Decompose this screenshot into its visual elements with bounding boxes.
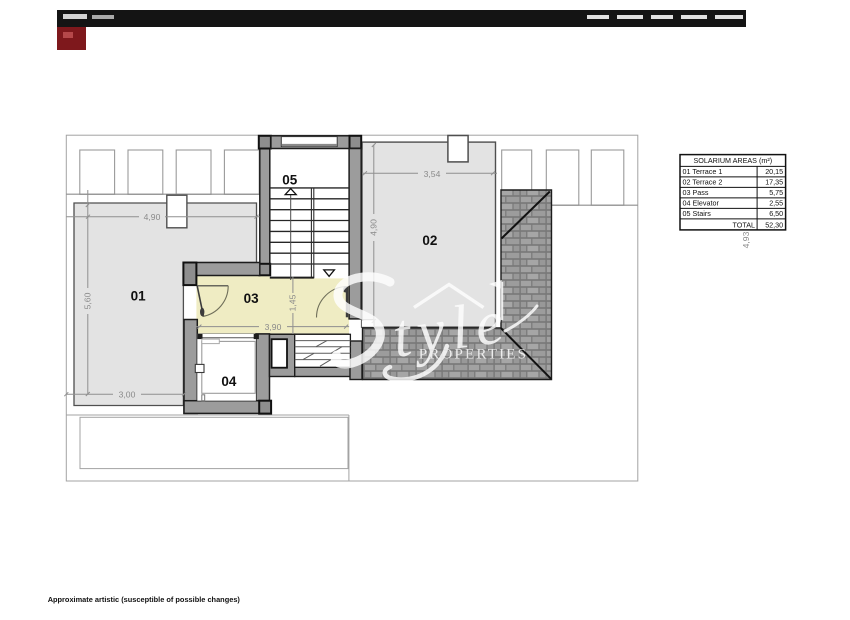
svg-text:03: 03 xyxy=(244,291,260,306)
svg-text:4,93: 4,93 xyxy=(741,231,751,248)
svg-text:52,30: 52,30 xyxy=(765,220,783,229)
svg-text:3,90: 3,90 xyxy=(265,322,282,332)
svg-text:4,90: 4,90 xyxy=(369,219,379,236)
svg-text:5,75: 5,75 xyxy=(769,188,783,197)
svg-text:PROPERTIES: PROPERTIES xyxy=(419,347,528,363)
svg-text:02 Terrace 2: 02 Terrace 2 xyxy=(683,178,723,187)
svg-text:Approximate artistic (suscepti: Approximate artistic (susceptible of pos… xyxy=(48,595,241,604)
svg-text:20,15: 20,15 xyxy=(765,167,783,176)
svg-text:TOTAL: TOTAL xyxy=(733,220,756,229)
svg-text:6,50: 6,50 xyxy=(769,209,783,218)
svg-text:01 Terrace 1: 01 Terrace 1 xyxy=(683,167,723,176)
svg-text:5,60: 5,60 xyxy=(83,292,93,309)
svg-text:01: 01 xyxy=(131,288,147,303)
svg-text:4,90: 4,90 xyxy=(144,212,161,222)
svg-text:05 Stairs: 05 Stairs xyxy=(683,209,712,218)
svg-text:05: 05 xyxy=(282,173,298,188)
svg-text:03 Pass: 03 Pass xyxy=(683,188,709,197)
svg-text:04: 04 xyxy=(221,374,237,389)
svg-text:04 Elevator: 04 Elevator xyxy=(683,199,720,208)
svg-text:3,00: 3,00 xyxy=(119,390,136,400)
svg-text:3,54: 3,54 xyxy=(424,169,441,179)
svg-text:02: 02 xyxy=(422,233,437,248)
svg-text:2,55: 2,55 xyxy=(769,199,783,208)
svg-text:17,35: 17,35 xyxy=(765,178,783,187)
svg-text:SOLARIUM AREAS (m²): SOLARIUM AREAS (m²) xyxy=(693,156,772,165)
svg-text:1,45: 1,45 xyxy=(288,294,298,311)
